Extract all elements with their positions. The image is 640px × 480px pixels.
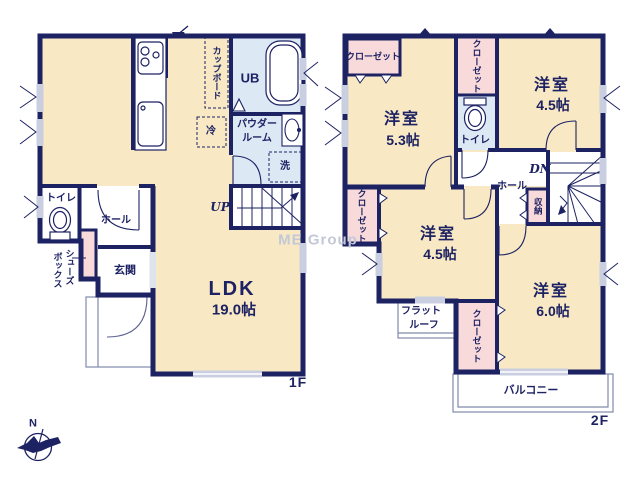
shoe-box-label: シューズ xyxy=(65,249,74,285)
bedroom-se-size-label: 6.0帖 xyxy=(536,304,569,318)
toilet-2f-icon xyxy=(464,98,486,131)
closet-mid-label: クローゼット xyxy=(472,39,481,93)
ldk-hall-opening xyxy=(150,252,157,288)
closet-nw-label: クローゼット xyxy=(346,53,400,62)
closet-sw-label: クローゼット xyxy=(357,189,366,243)
floorplan-page: LDK 19.0帖 カップボード 冷 UB パウダー ルーム 洗 UP トイレ … xyxy=(0,0,640,480)
stairs-dn-label: DN xyxy=(529,163,550,175)
bedroom-nw-label: 洋室 xyxy=(384,112,420,128)
compass-icon xyxy=(17,429,61,461)
fridge-label: 冷 xyxy=(206,127,216,137)
powder-room-label: パウダー xyxy=(237,120,277,130)
floor1-label: 1F xyxy=(289,375,307,389)
toilet-1f-icon xyxy=(50,208,71,241)
stairs-up-label: UP xyxy=(210,201,230,213)
toilet-1f-label: トイレ xyxy=(46,194,76,204)
bedroom-se-label: 洋室 xyxy=(533,284,569,300)
flat-roof-label2: ルーフ xyxy=(409,321,438,331)
unit-bath-label: UB xyxy=(241,72,260,85)
sink-icon xyxy=(138,102,163,146)
balcony-label: バルコニー xyxy=(504,386,559,397)
flat-roof-label: フラット xyxy=(401,307,441,317)
vent-flag-icon xyxy=(172,26,188,38)
hall-2f-corridor xyxy=(498,187,526,224)
kitchen-counter xyxy=(135,38,166,150)
compass-north-label: N xyxy=(29,419,37,430)
bedroom-ne-size-label: 4.5帖 xyxy=(536,98,569,112)
watermark: ME Group xyxy=(278,233,358,248)
entrance-label: 玄関 xyxy=(114,266,136,277)
hall-2f-label: ホール xyxy=(497,182,527,192)
floor2-label: 2F xyxy=(591,413,609,427)
bedroom-sw-size-label: 4.5帖 xyxy=(423,247,456,261)
bathtub-icon xyxy=(266,41,302,105)
cupboard-label: カップボード xyxy=(212,46,221,100)
storage-label: 収納 xyxy=(534,198,543,215)
hall-1f-label: ホール xyxy=(101,216,131,226)
ldk-size-label: 19.0帖 xyxy=(212,303,256,318)
stove-icon xyxy=(138,42,163,74)
porch xyxy=(86,297,152,367)
washbasin-icon xyxy=(282,114,303,146)
washer-label: 洗 xyxy=(280,162,290,172)
ldk-label: LDK xyxy=(208,279,255,299)
toilet-2f-label: トイレ xyxy=(460,136,490,146)
closet-se-label: クローゼット xyxy=(472,309,481,363)
shoe-box-label2: ボックス xyxy=(53,252,62,288)
powder-room-label2: ルーム xyxy=(242,134,272,144)
bedroom-ne-label: 洋室 xyxy=(534,78,570,94)
bedroom-nw-size-label: 5.3帖 xyxy=(386,133,419,147)
bedroom-sw-label: 洋室 xyxy=(420,227,456,243)
